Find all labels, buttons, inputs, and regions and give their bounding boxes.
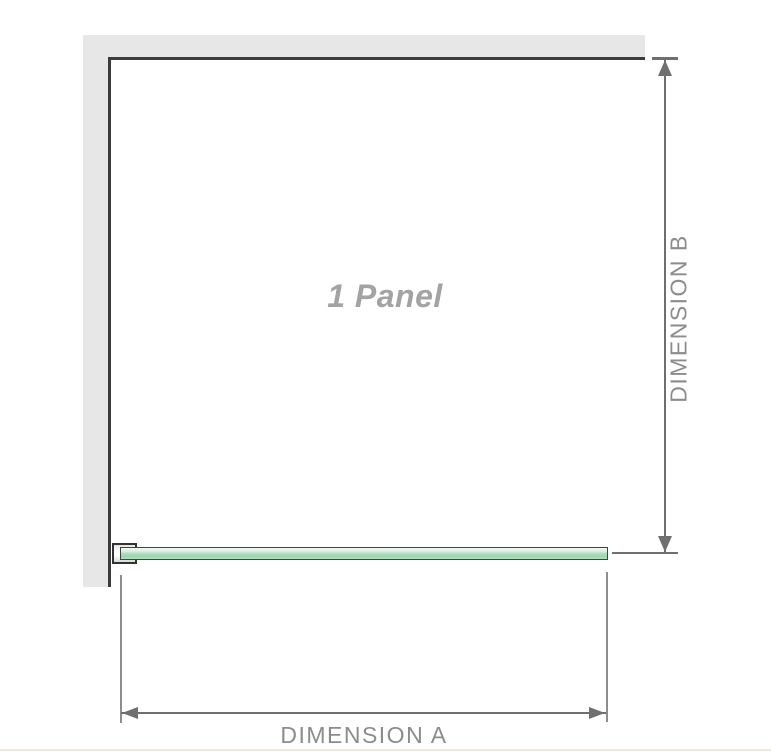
wall-inner-edge-left <box>108 57 111 587</box>
arrow-down-icon <box>658 536 672 552</box>
dimension-a-line <box>121 712 606 715</box>
wall-inner-edge-top <box>108 57 645 60</box>
wall-top-band <box>83 35 645 57</box>
dimension-a-extension-left <box>120 575 123 723</box>
panel-dimension-diagram: 1 Panel DIMENSION B DIMENSION A <box>0 0 771 755</box>
arrow-up-icon <box>658 60 672 76</box>
panel-count-label: 1 Panel <box>285 276 485 316</box>
dimension-a-label: DIMENSION A <box>122 722 606 748</box>
dimension-a-extension-right <box>606 572 609 722</box>
wall-left-band <box>83 35 108 587</box>
dimension-b-bottom-tick <box>612 552 678 555</box>
glass-panel <box>120 547 608 560</box>
page-bottom-rule <box>0 749 771 751</box>
dimension-b-label: DIMENSION B <box>667 169 692 469</box>
arrow-right-icon <box>589 707 605 719</box>
arrow-left-icon <box>122 707 138 719</box>
